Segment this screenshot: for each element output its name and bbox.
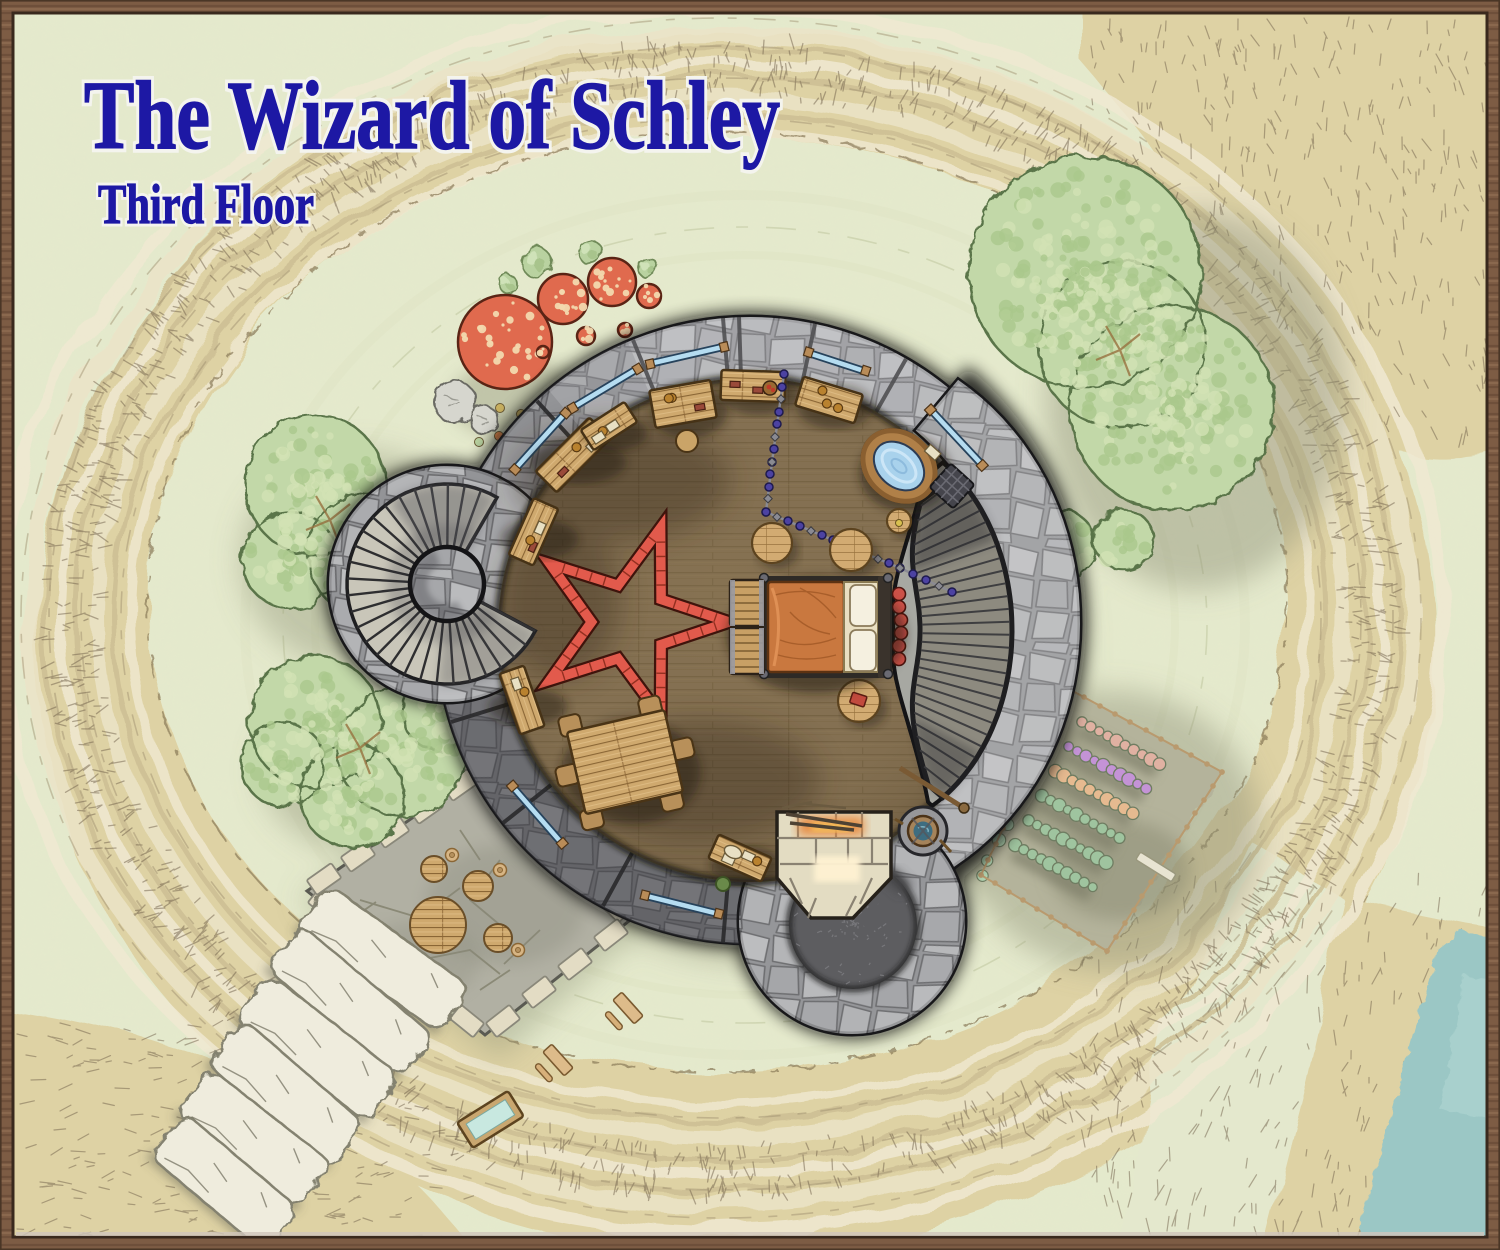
svg-text:The Wizard of Schley: The Wizard of Schley bbox=[84, 62, 780, 170]
svg-text:Third Floor: Third Floor bbox=[98, 174, 314, 236]
